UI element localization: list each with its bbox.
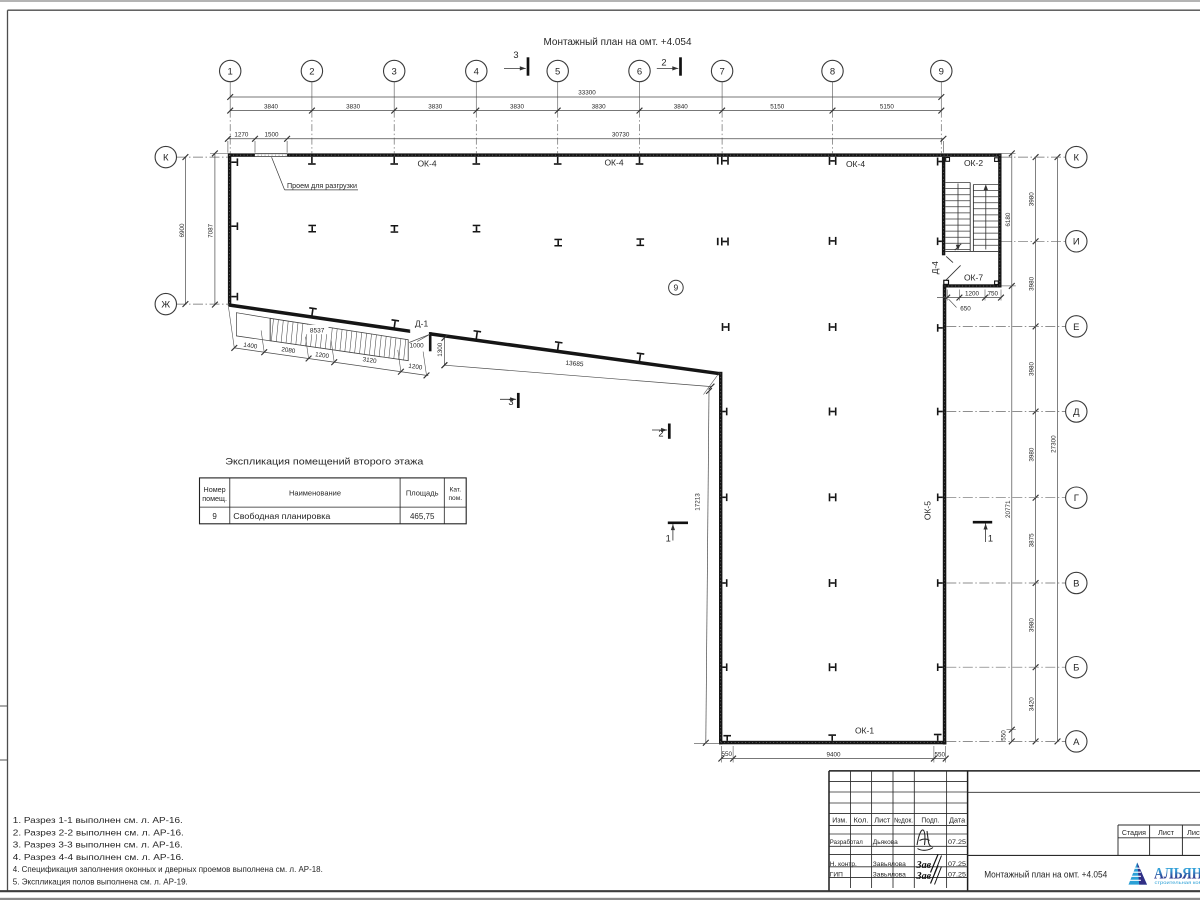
svg-text:Е: Е (1073, 322, 1079, 333)
svg-text:5. Экспликация полов выполнена: 5. Экспликация полов выполнена см. л. АР… (13, 876, 188, 886)
svg-text:30730: 30730 (612, 132, 630, 139)
svg-text:2080: 2080 (281, 346, 296, 355)
svg-text:Кат.: Кат. (450, 487, 462, 494)
svg-text:4. Разрез 4-4 выполнен см. л.: 4. Разрез 4-4 выполнен см. л. АР-16. (13, 852, 184, 862)
svg-text:650: 650 (960, 306, 971, 313)
svg-text:ОК-2: ОК-2 (964, 158, 983, 168)
svg-text:К: К (1074, 153, 1080, 164)
svg-text:3840: 3840 (264, 104, 279, 111)
svg-text:550: 550 (1000, 730, 1007, 741)
svg-text:3: 3 (392, 66, 397, 77)
svg-text:ОК-4: ОК-4 (417, 159, 436, 169)
svg-text:Лист: Лист (1158, 830, 1175, 837)
svg-text:Подп.: Подп. (921, 818, 939, 825)
svg-text:3830: 3830 (592, 104, 607, 111)
svg-text:Свободная планировка: Свободная планировка (233, 512, 331, 521)
svg-text:2. Разрез 2-2 выполнен см. л.: 2. Разрез 2-2 выполнен см. л. АР-16. (13, 827, 184, 837)
svg-text:3980: 3980 (1029, 447, 1036, 462)
svg-text:Номер: Номер (204, 485, 226, 494)
svg-text:пом.: пом. (448, 495, 462, 502)
svg-text:Листов: Листов (1187, 830, 1200, 837)
svg-text:Зав: Зав (916, 860, 932, 871)
svg-text:33300: 33300 (578, 90, 596, 97)
svg-text:3830: 3830 (510, 104, 525, 111)
svg-text:27300: 27300 (1051, 435, 1058, 453)
svg-text:07.25: 07.25 (948, 839, 966, 846)
svg-text:ОК-4: ОК-4 (846, 159, 865, 169)
svg-text:2: 2 (309, 66, 314, 77)
svg-text:5: 5 (555, 66, 560, 77)
svg-text:465,75: 465,75 (410, 512, 435, 521)
svg-text:1200: 1200 (408, 363, 423, 372)
svg-text:Монтажный план на омт. +4.054: Монтажный план на омт. +4.054 (984, 869, 1107, 879)
svg-text:9: 9 (212, 512, 217, 521)
svg-text:8: 8 (830, 66, 835, 77)
svg-text:7087: 7087 (208, 223, 215, 238)
svg-text:07.25: 07.25 (948, 871, 966, 878)
svg-text:9400: 9400 (826, 752, 841, 759)
svg-text:Кол.: Кол. (854, 818, 869, 825)
svg-text:Изм.: Изм. (832, 818, 847, 825)
svg-text:Д-1: Д-1 (415, 318, 429, 328)
svg-text:07.25: 07.25 (948, 861, 966, 868)
svg-text:Дьякова: Дьякова (873, 839, 898, 846)
svg-text:№док.: №док. (894, 818, 913, 825)
svg-text:5150: 5150 (770, 104, 785, 111)
svg-text:3: 3 (513, 50, 518, 60)
svg-text:Экспликация помещений второго: Экспликация помещений второго этажа (225, 457, 424, 467)
svg-text:3830: 3830 (346, 104, 361, 111)
svg-text:Зав: Зав (916, 871, 932, 882)
svg-text:1200: 1200 (965, 291, 980, 298)
svg-text:Завьялова: Завьялова (873, 871, 906, 878)
svg-text:В: В (1073, 578, 1079, 589)
svg-text:7: 7 (719, 66, 724, 77)
svg-text:1: 1 (666, 534, 671, 544)
svg-text:Н. контр.: Н. контр. (830, 861, 857, 868)
svg-text:750: 750 (988, 291, 999, 298)
svg-text:2: 2 (661, 58, 666, 68)
svg-text:ОК-7: ОК-7 (964, 272, 983, 282)
svg-text:Проем для разгрузки: Проем для разгрузки (287, 183, 357, 190)
svg-text:ОК-4: ОК-4 (604, 158, 623, 168)
svg-text:1: 1 (988, 534, 993, 544)
svg-text:3875: 3875 (1029, 533, 1036, 548)
svg-text:ГИП: ГИП (830, 871, 843, 878)
svg-text:3830: 3830 (428, 104, 443, 111)
svg-text:6180: 6180 (1005, 212, 1012, 227)
svg-text:8537: 8537 (310, 328, 325, 335)
svg-text:строительная компания: строительная компания (1155, 880, 1200, 885)
svg-text:4: 4 (474, 66, 479, 77)
svg-text:3980: 3980 (1029, 618, 1036, 633)
svg-text:ОК-1: ОК-1 (855, 726, 874, 736)
svg-text:3980: 3980 (1029, 362, 1036, 377)
svg-text:Наименование: Наименование (289, 488, 341, 497)
svg-text:17213: 17213 (695, 493, 702, 511)
svg-text:1270: 1270 (234, 132, 249, 139)
svg-text:Стадия: Стадия (1122, 830, 1146, 837)
svg-text:3980: 3980 (1029, 192, 1036, 207)
svg-text:9: 9 (674, 283, 679, 293)
svg-text:20771: 20771 (1005, 500, 1012, 518)
svg-text:Д: Д (1073, 407, 1080, 418)
svg-text:2: 2 (658, 429, 663, 439)
svg-text:К: К (163, 153, 169, 164)
svg-text:3: 3 (508, 397, 513, 407)
svg-text:9: 9 (939, 66, 944, 77)
svg-text:Д-4: Д-4 (930, 261, 940, 274)
svg-text:5150: 5150 (880, 104, 895, 111)
svg-text:3. Разрез 3-3 выполнен см. л.: 3. Разрез 3-3 выполнен см. л. АР-16. (13, 840, 183, 850)
svg-text:Монтажный план на омт. +4.054: Монтажный план на омт. +4.054 (544, 36, 692, 48)
svg-text:А: А (1073, 737, 1080, 748)
svg-text:1200: 1200 (315, 351, 330, 360)
svg-text:И: И (1073, 237, 1080, 248)
svg-text:Дата: Дата (949, 818, 965, 825)
svg-text:3420: 3420 (1029, 697, 1036, 712)
svg-text:1500: 1500 (264, 132, 279, 139)
svg-text:Ж: Ж (161, 300, 170, 311)
svg-text:Б: Б (1073, 663, 1079, 674)
svg-text:550: 550 (935, 752, 946, 759)
svg-text:6900: 6900 (179, 223, 186, 238)
svg-text:помещ.: помещ. (202, 494, 227, 503)
svg-text:Завьялова: Завьялова (873, 861, 906, 868)
svg-text:Площадь: Площадь (406, 488, 439, 497)
svg-text:1000: 1000 (410, 343, 425, 350)
svg-text:Лист: Лист (874, 818, 891, 825)
svg-text:Г: Г (1074, 493, 1079, 504)
svg-text:3980: 3980 (1029, 276, 1036, 291)
svg-text:1300: 1300 (437, 342, 444, 357)
svg-text:4. Спецификация заполнения око: 4. Спецификация заполнения оконных и две… (13, 864, 323, 874)
svg-text:3840: 3840 (674, 104, 689, 111)
svg-text:1: 1 (228, 66, 233, 77)
svg-text:ОК-5: ОК-5 (923, 501, 933, 520)
svg-text:13685: 13685 (565, 360, 584, 368)
svg-text:6: 6 (637, 66, 642, 77)
svg-text:3120: 3120 (362, 356, 377, 365)
svg-text:1. Разрез 1-1 выполнен см. л.: 1. Разрез 1-1 выполнен см. л. АР-16. (13, 815, 183, 825)
svg-text:550: 550 (721, 751, 732, 758)
svg-text:Разработал: Разработал (830, 838, 863, 846)
